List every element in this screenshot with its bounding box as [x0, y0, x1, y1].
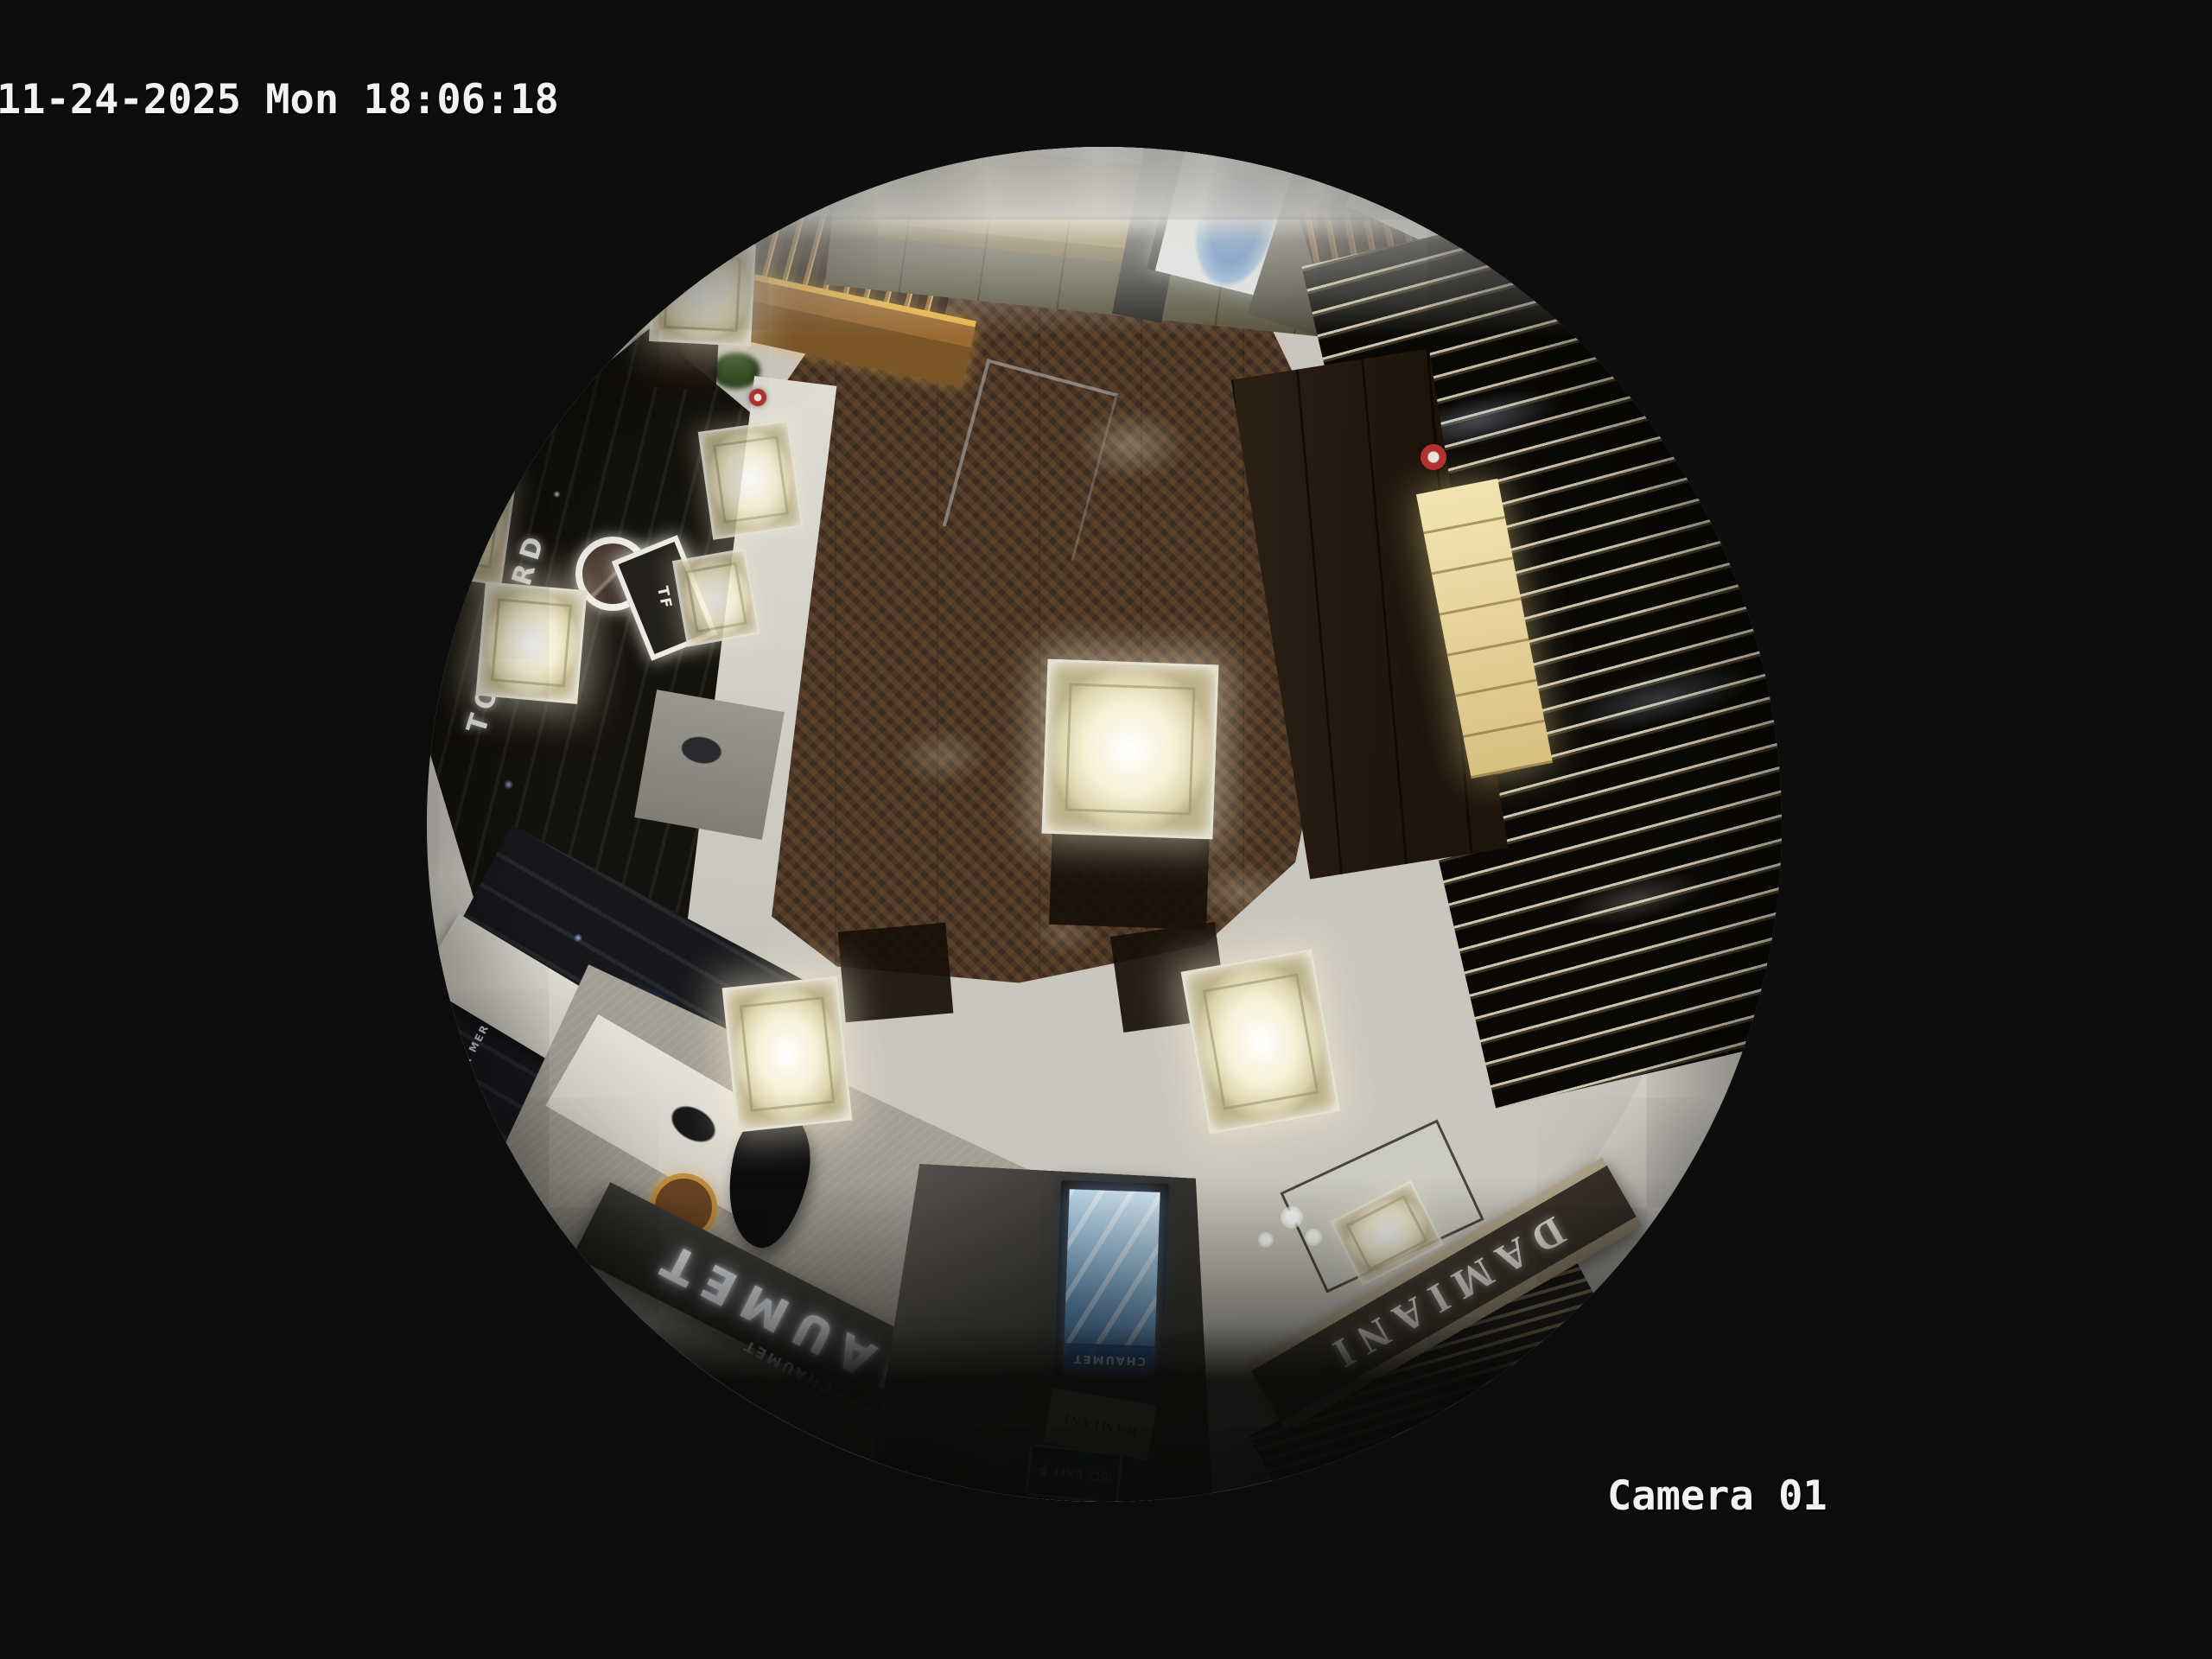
osd-timestamp: 11-24-2025 Mon 18:06:18 — [0, 79, 559, 120]
fisheye-view: TOM FORD TF LA MER CHAUMET CHAUMET CHAUM… — [427, 147, 1782, 1502]
planter-greenery — [556, 309, 607, 347]
fisheye-vignette — [427, 147, 1782, 1502]
cctv-frame: 11-24-2025 Mon 18:06:18 TOM FORD TF — [0, 0, 2212, 1659]
display-case — [435, 246, 573, 396]
osd-camera-label: Camera 01 — [1607, 1476, 1827, 1516]
